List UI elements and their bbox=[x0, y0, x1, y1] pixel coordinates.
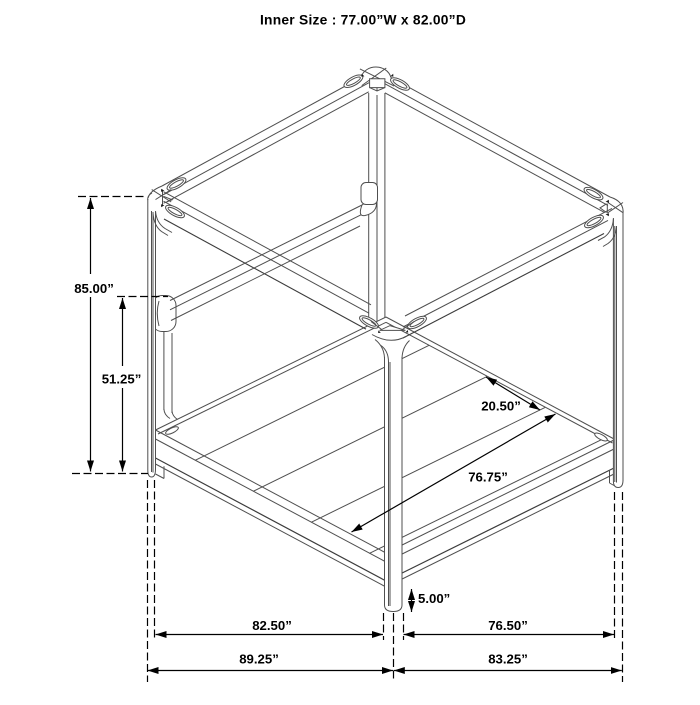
svg-text:76.75”: 76.75” bbox=[468, 470, 508, 485]
svg-text:51.25”: 51.25” bbox=[102, 372, 142, 387]
svg-text:76.50”: 76.50” bbox=[488, 618, 528, 633]
svg-text:5.00”: 5.00” bbox=[418, 591, 450, 606]
svg-text:82.50”: 82.50” bbox=[252, 618, 292, 633]
svg-text:89.25”: 89.25” bbox=[239, 652, 279, 667]
svg-text:85.00”: 85.00” bbox=[74, 281, 114, 296]
svg-text:20.50”: 20.50” bbox=[481, 399, 521, 414]
svg-text:83.25”: 83.25” bbox=[488, 652, 528, 667]
svg-text:Inner Size : 77.00”W x 82.00”D: Inner Size : 77.00”W x 82.00”D bbox=[260, 13, 466, 28]
